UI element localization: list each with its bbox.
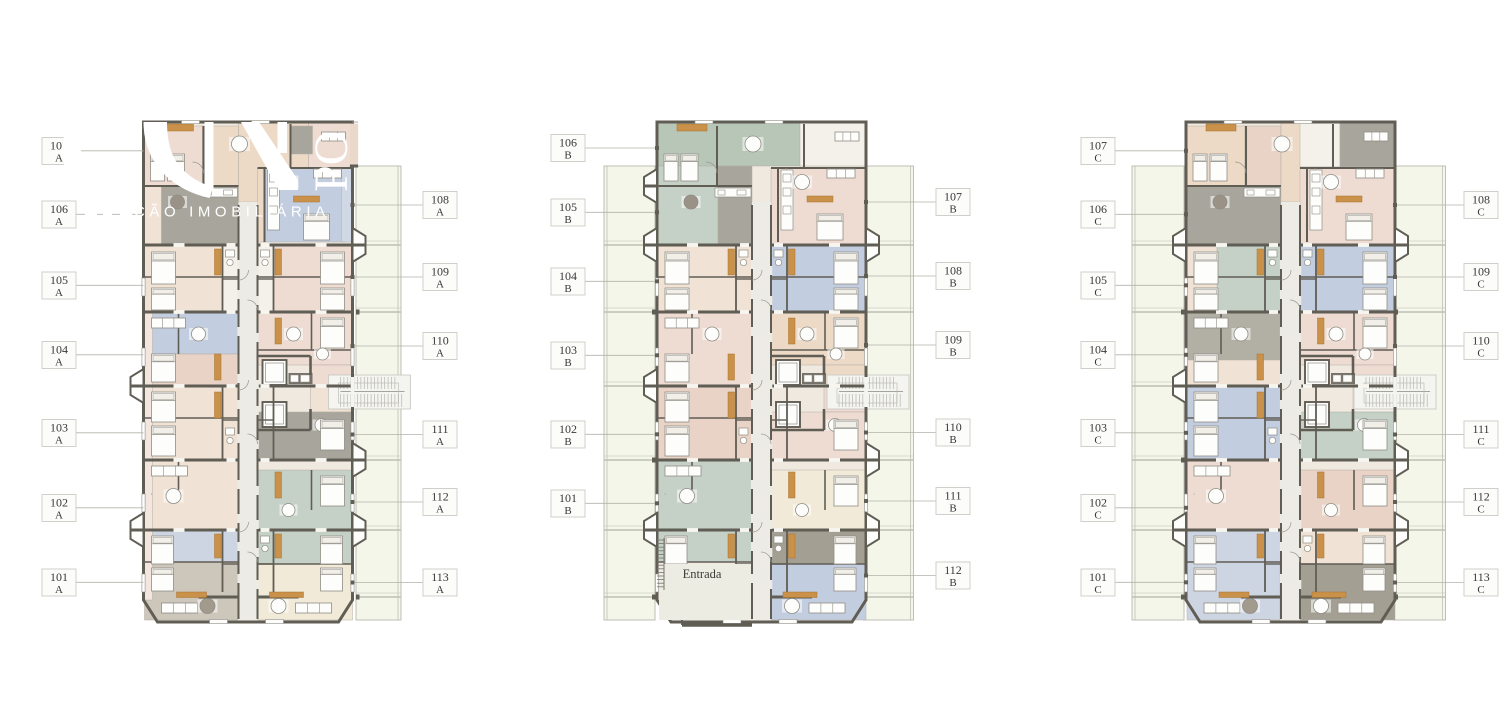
svg-text:B: B: [564, 150, 571, 162]
svg-text:A: A: [55, 510, 63, 522]
svg-text:C: C: [1094, 216, 1101, 228]
svg-text:107: 107: [944, 190, 962, 204]
svg-text:C: C: [1094, 153, 1101, 165]
svg-text:B: B: [564, 436, 571, 448]
svg-text:A: A: [436, 584, 444, 596]
svg-text:B: B: [564, 505, 571, 517]
svg-text:102: 102: [559, 422, 577, 436]
svg-text:C: C: [1477, 207, 1484, 219]
svg-text:111: 111: [1472, 422, 1489, 436]
svg-text:A: A: [436, 436, 444, 448]
svg-text:108: 108: [944, 264, 962, 278]
svg-text:Entrada: Entrada: [683, 567, 722, 581]
svg-text:A: A: [55, 435, 63, 447]
svg-text:A: A: [436, 207, 444, 219]
svg-text:102: 102: [1089, 496, 1107, 510]
svg-text:112: 112: [431, 490, 449, 504]
svg-text:B: B: [564, 283, 571, 295]
svg-text:104: 104: [1089, 343, 1107, 357]
svg-text:C: C: [1477, 348, 1484, 360]
svg-text:101: 101: [559, 491, 577, 505]
svg-text:108: 108: [1472, 193, 1490, 207]
svg-text:A: A: [55, 287, 63, 299]
svg-text:A: A: [436, 348, 444, 360]
svg-text:C: C: [1477, 279, 1484, 291]
svg-text:106: 106: [50, 202, 68, 216]
svg-text:C: C: [1477, 584, 1484, 596]
svg-text:C: C: [1094, 435, 1101, 447]
svg-text:105: 105: [1089, 273, 1107, 287]
svg-text:A: A: [55, 357, 63, 369]
svg-text:107: 107: [1089, 139, 1107, 153]
svg-text:112: 112: [1472, 490, 1490, 504]
svg-text:C: C: [1094, 357, 1101, 369]
svg-text:103: 103: [1089, 421, 1107, 435]
svg-text:C: C: [1477, 504, 1484, 516]
svg-text:109: 109: [431, 265, 449, 279]
svg-text:C: C: [1477, 436, 1484, 448]
svg-text:B: B: [949, 577, 956, 589]
svg-text:111: 111: [431, 422, 448, 436]
svg-text:101: 101: [50, 570, 68, 584]
svg-text:113: 113: [431, 570, 449, 584]
svg-text:A: A: [436, 504, 444, 516]
svg-text:102: 102: [50, 496, 68, 510]
svg-text:103: 103: [559, 343, 577, 357]
svg-text:113: 113: [1472, 570, 1490, 584]
svg-text:111: 111: [944, 489, 961, 503]
svg-text:B: B: [949, 434, 956, 446]
svg-text:106: 106: [559, 136, 577, 150]
svg-text:101: 101: [1089, 570, 1107, 584]
svg-text:108: 108: [431, 193, 449, 207]
svg-text:B: B: [949, 278, 956, 290]
svg-text:110: 110: [1472, 334, 1490, 348]
svg-text:105: 105: [50, 273, 68, 287]
svg-text:105: 105: [559, 200, 577, 214]
svg-text:B: B: [564, 214, 571, 226]
svg-text:110: 110: [431, 334, 449, 348]
svg-text:C: C: [1094, 510, 1101, 522]
svg-text:B: B: [949, 347, 956, 359]
svg-text:C: C: [1094, 287, 1101, 299]
svg-text:B: B: [564, 357, 571, 369]
svg-text:104: 104: [50, 343, 68, 357]
svg-text:ÇÃO IMOBILIÁRIA: ÇÃO IMOBILIÁRIA: [134, 204, 330, 221]
svg-text:103: 103: [50, 421, 68, 435]
svg-text:109: 109: [944, 333, 962, 347]
svg-text:A: A: [55, 216, 63, 228]
svg-text:104: 104: [559, 269, 577, 283]
svg-text:110: 110: [944, 420, 962, 434]
svg-text:B: B: [949, 503, 956, 515]
svg-text:112: 112: [944, 563, 962, 577]
svg-text:PO: PO: [305, 131, 358, 192]
svg-text:109: 109: [1472, 265, 1490, 279]
svg-text:106: 106: [1089, 202, 1107, 216]
svg-text:A: A: [55, 584, 63, 596]
svg-text:A: A: [436, 279, 444, 291]
svg-text:B: B: [949, 204, 956, 216]
svg-text:C: C: [1094, 584, 1101, 596]
